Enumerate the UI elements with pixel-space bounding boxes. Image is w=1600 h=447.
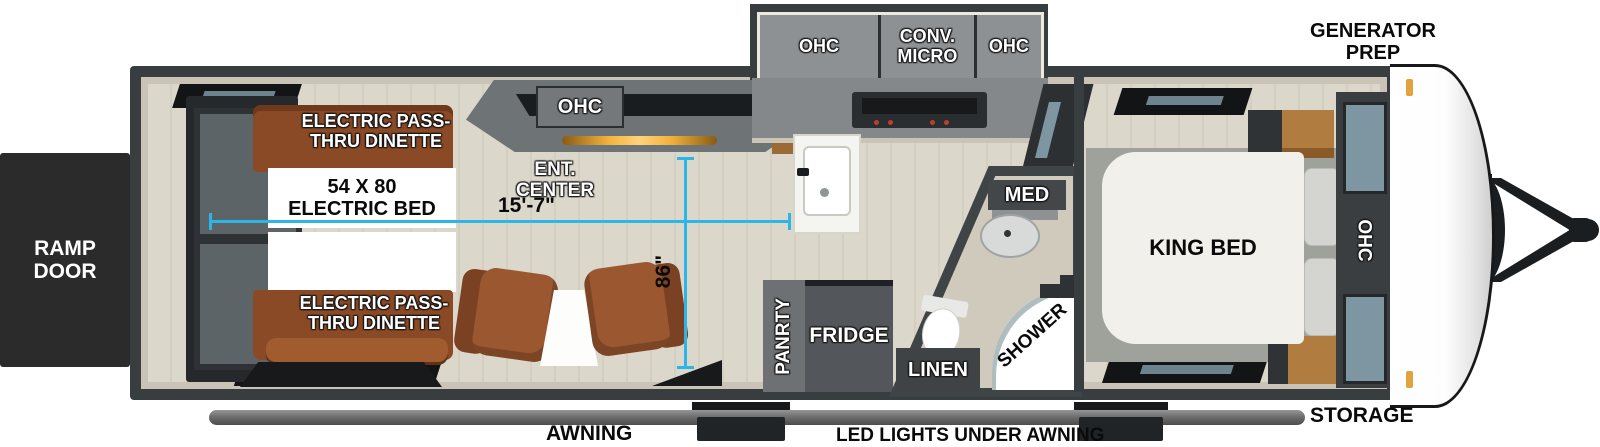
ohc-right-label: OHC: [989, 37, 1029, 57]
dinette-top-label: ELECTRIC PASS-THRU DINETTE: [300, 112, 452, 152]
length-dimension-line: [211, 220, 791, 223]
bedroom-wall: [1074, 74, 1084, 392]
width-dimension-label: 86": [652, 255, 675, 288]
kitchen-sink-counter: [793, 134, 861, 234]
conv-micro-cabinet: CONV. MICRO: [881, 15, 977, 79]
bath-sink: [980, 214, 1040, 258]
ohc-living-label: OHC: [558, 96, 602, 118]
storage-label: STORAGE: [1310, 404, 1413, 427]
marker-light-top: [1406, 79, 1413, 96]
dinette-bottom-cushion: [266, 338, 448, 362]
pantry-cabinet: PANRTY: [763, 280, 805, 392]
conv-micro-label: CONV. MICRO: [892, 27, 962, 67]
pantry-label: PANRTY: [774, 298, 795, 375]
ohc-living-box: OHC: [536, 86, 624, 128]
width-dim-cap-bottom: [677, 366, 694, 369]
dinette-bottom-label: ELECTRIC PASS-THRU DINETTE: [298, 294, 450, 334]
cooktop: [852, 92, 987, 128]
linen-label: LINEN: [908, 359, 968, 381]
length-dim-cap-right: [788, 213, 791, 230]
electric-bed-label: 54 X 80 ELECTRIC BED: [268, 168, 456, 228]
fireplace-glow: [562, 136, 717, 145]
king-bed: KING BED: [1102, 152, 1304, 344]
length-dimension-label: 15'-7": [498, 194, 555, 217]
ohc-cabinet-right: OHC: [977, 15, 1041, 79]
rv-floorplan: RAMP DOOR OHC CONV. MICRO OHC ELECTRIC P…: [0, 0, 1600, 447]
dinette-floor-mat: [240, 362, 442, 387]
kitchen-bumpout: OHC CONV. MICRO OHC: [750, 4, 1048, 80]
width-dim-cap-top: [677, 157, 694, 160]
entry-step-left-lower: [697, 417, 785, 441]
led-lights-label: LED LIGHTS UNDER AWNING: [836, 426, 1104, 447]
bedroom-ohc-label: OHC: [1353, 219, 1374, 261]
shower-corner-cap: [1040, 284, 1076, 298]
medicine-cabinet: MED: [988, 180, 1066, 210]
electric-bed-box-2: [268, 232, 456, 292]
pillow-bottom: [1304, 258, 1340, 336]
ramp-door-label: RAMP DOOR: [24, 237, 106, 283]
sink-bowl: [803, 146, 851, 216]
ohc-cabinet-left: OHC: [760, 15, 881, 79]
sink-faucet: [797, 168, 809, 176]
bumpout-cabinet-row: OHC CONV. MICRO OHC: [757, 12, 1044, 82]
width-dimension-label-wrap: 86": [642, 244, 686, 300]
awning-label: AWNING: [546, 422, 632, 445]
length-dim-cap-left: [209, 213, 212, 230]
sink-drain: [820, 188, 829, 197]
front-cap: [1390, 64, 1495, 408]
linen-cabinet: LINEN: [896, 348, 980, 392]
bedroom-top-vent: [1114, 88, 1253, 115]
pillow-top: [1304, 168, 1340, 246]
med-label: MED: [1005, 184, 1049, 206]
bedroom-wardrobe: OHC: [1336, 92, 1390, 388]
king-bed-label: KING BED: [1149, 236, 1257, 260]
nightstand-top: [1248, 110, 1334, 158]
marker-light-bottom: [1406, 371, 1413, 388]
ramp-door-box: RAMP DOOR: [0, 153, 130, 367]
generator-prep-label: GENERATOR PREP: [1298, 20, 1448, 64]
ohc-left-label: OHC: [799, 37, 839, 57]
